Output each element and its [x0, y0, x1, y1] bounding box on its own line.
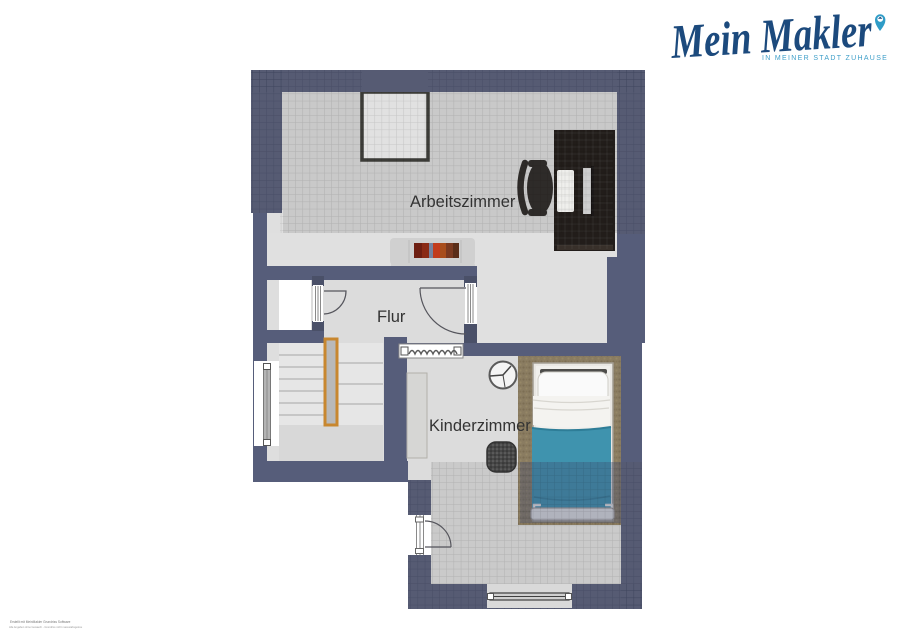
svg-text:Arbeitszimmer: Arbeitszimmer — [410, 193, 516, 211]
svg-text:IN MEINER STADT ZUHAUSE: IN MEINER STADT ZUHAUSE — [762, 55, 888, 62]
svg-text:Kinderzimmer: Kinderzimmer — [429, 417, 531, 435]
svg-text:Flur: Flur — [377, 308, 406, 326]
svg-text:Erstellt mit MeinMakler Grundr: Erstellt mit MeinMakler Grundriss Softwa… — [10, 620, 71, 624]
svg-text:Alle Angaben ohne Gewaehr - Gr: Alle Angaben ohne Gewaehr - Grundriss ni… — [9, 625, 83, 629]
